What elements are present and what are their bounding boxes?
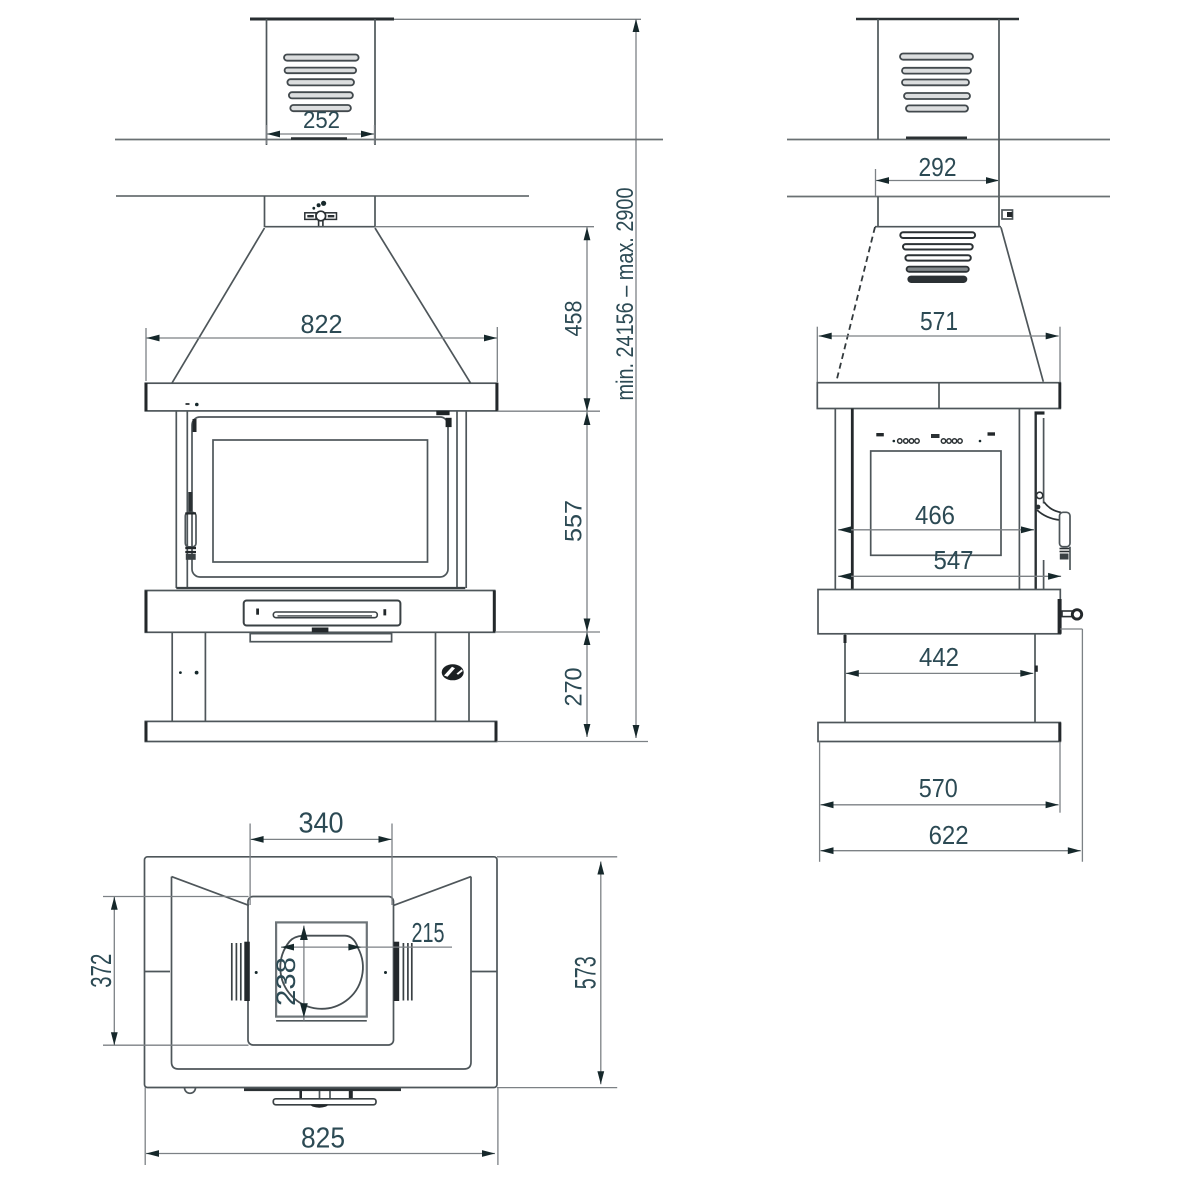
svg-text:238: 238 bbox=[271, 957, 301, 1006]
svg-text:458: 458 bbox=[561, 301, 588, 337]
svg-text:573: 573 bbox=[570, 956, 603, 989]
svg-text:570: 570 bbox=[919, 773, 958, 803]
svg-text:466: 466 bbox=[915, 500, 955, 530]
svg-text:622: 622 bbox=[929, 820, 969, 850]
svg-text:270: 270 bbox=[561, 668, 588, 707]
svg-text:340: 340 bbox=[299, 808, 344, 840]
svg-text:215: 215 bbox=[412, 917, 445, 948]
svg-text:min. 24156 – max. 2900: min. 24156 – max. 2900 bbox=[612, 188, 639, 401]
svg-text:547: 547 bbox=[934, 545, 974, 575]
svg-text:292: 292 bbox=[919, 152, 957, 182]
svg-text:442: 442 bbox=[919, 642, 959, 672]
svg-text:571: 571 bbox=[920, 306, 958, 336]
svg-text:372: 372 bbox=[86, 954, 118, 988]
svg-text:252: 252 bbox=[303, 107, 340, 134]
svg-text:822: 822 bbox=[301, 309, 343, 339]
svg-text:557: 557 bbox=[561, 500, 588, 542]
svg-text:825: 825 bbox=[301, 1123, 345, 1155]
